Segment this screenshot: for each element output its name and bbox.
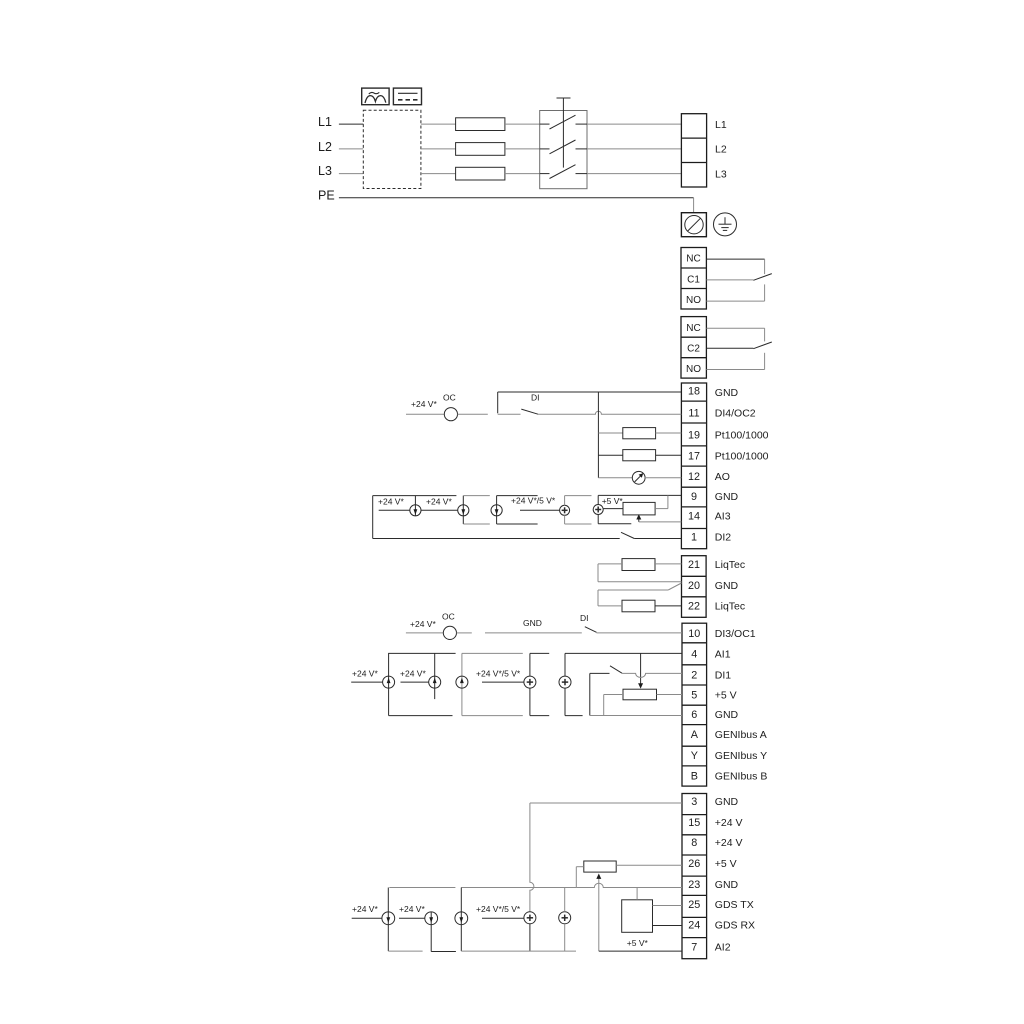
svg-text:DI: DI bbox=[531, 393, 540, 403]
svg-text:L2: L2 bbox=[318, 140, 332, 154]
svg-text:+24 V*/5 V*: +24 V*/5 V* bbox=[476, 904, 521, 914]
svg-text:10: 10 bbox=[688, 628, 700, 640]
svg-text:NC: NC bbox=[686, 254, 700, 265]
svg-text:GENIbus B: GENIbus B bbox=[715, 771, 768, 783]
svg-text:L3: L3 bbox=[715, 168, 727, 180]
svg-text:Pt100/1000: Pt100/1000 bbox=[715, 430, 769, 442]
svg-text:Y: Y bbox=[691, 750, 698, 762]
svg-text:+24 V*: +24 V* bbox=[400, 668, 426, 678]
svg-text:+24 V*: +24 V* bbox=[352, 668, 378, 678]
svg-text:OC: OC bbox=[443, 393, 456, 403]
svg-text:DI4/OC2: DI4/OC2 bbox=[715, 408, 756, 420]
svg-text:11: 11 bbox=[688, 408, 699, 420]
svg-text:+5 V: +5 V bbox=[715, 689, 737, 701]
svg-text:GND: GND bbox=[715, 580, 739, 592]
svg-text:Pt100/1000: Pt100/1000 bbox=[715, 451, 769, 463]
svg-text:18: 18 bbox=[688, 386, 700, 398]
svg-text:3: 3 bbox=[691, 796, 697, 808]
svg-text:C1: C1 bbox=[687, 274, 700, 285]
svg-text:NO: NO bbox=[686, 364, 701, 375]
svg-text:GND: GND bbox=[523, 618, 542, 628]
svg-text:15: 15 bbox=[688, 817, 700, 829]
svg-text:GDS TX: GDS TX bbox=[715, 899, 754, 911]
svg-text:17: 17 bbox=[688, 451, 700, 463]
svg-text:GND: GND bbox=[715, 879, 739, 891]
svg-text:+5 V: +5 V bbox=[715, 858, 737, 870]
svg-text:AI2: AI2 bbox=[715, 941, 731, 953]
svg-text:A: A bbox=[691, 729, 699, 741]
svg-text:22: 22 bbox=[688, 600, 700, 612]
svg-text:+24 V*/5 V*: +24 V*/5 V* bbox=[476, 668, 521, 678]
svg-text:12: 12 bbox=[688, 471, 700, 483]
svg-text:+24 V*: +24 V* bbox=[378, 497, 404, 507]
svg-text:5: 5 bbox=[691, 689, 697, 701]
svg-text:DI: DI bbox=[580, 613, 589, 623]
svg-text:+24 V: +24 V bbox=[715, 817, 743, 829]
svg-text:GND: GND bbox=[715, 387, 739, 399]
svg-text:9: 9 bbox=[691, 491, 697, 503]
svg-text:+24 V*: +24 V* bbox=[399, 904, 425, 914]
svg-text:6: 6 bbox=[691, 709, 697, 721]
svg-text:DI2: DI2 bbox=[715, 531, 732, 543]
svg-text:23: 23 bbox=[688, 879, 700, 891]
svg-text:AI1: AI1 bbox=[715, 648, 731, 660]
svg-text:LiqTec: LiqTec bbox=[715, 559, 745, 571]
svg-text:24: 24 bbox=[688, 919, 700, 931]
svg-text:+24 V*: +24 V* bbox=[410, 619, 436, 629]
svg-text:B: B bbox=[691, 771, 698, 783]
svg-text:OC: OC bbox=[442, 612, 455, 622]
svg-text:L3: L3 bbox=[318, 164, 332, 178]
svg-text:+24 V: +24 V bbox=[715, 837, 743, 849]
svg-text:GND: GND bbox=[715, 796, 739, 808]
svg-text:GENIbus Y: GENIbus Y bbox=[715, 750, 767, 762]
svg-text:+24 V*: +24 V* bbox=[411, 399, 437, 409]
svg-text:+24 V*: +24 V* bbox=[426, 497, 452, 507]
svg-text:8: 8 bbox=[691, 837, 697, 849]
svg-text:26: 26 bbox=[688, 858, 700, 870]
svg-text:+24 V*: +24 V* bbox=[352, 904, 378, 914]
svg-text:LiqTec: LiqTec bbox=[715, 600, 745, 612]
svg-text:+24 V*/5 V*: +24 V*/5 V* bbox=[511, 496, 556, 506]
svg-text:2: 2 bbox=[691, 669, 697, 681]
svg-text:14: 14 bbox=[688, 510, 700, 522]
svg-text:DI1: DI1 bbox=[715, 669, 732, 681]
svg-text:AO: AO bbox=[715, 471, 730, 483]
svg-text:GND: GND bbox=[715, 709, 739, 721]
svg-text:19: 19 bbox=[688, 430, 700, 442]
svg-text:GDS RX: GDS RX bbox=[715, 919, 755, 931]
svg-text:DI3/OC1: DI3/OC1 bbox=[715, 628, 756, 640]
svg-text:+5 V*: +5 V* bbox=[627, 938, 649, 948]
svg-text:AI3: AI3 bbox=[715, 510, 731, 522]
svg-text:+5 V*: +5 V* bbox=[602, 496, 624, 506]
svg-text:C2: C2 bbox=[687, 344, 700, 355]
svg-text:L1: L1 bbox=[715, 119, 727, 131]
svg-text:GENIbus A: GENIbus A bbox=[715, 729, 767, 741]
svg-text:20: 20 bbox=[688, 580, 700, 592]
svg-text:1: 1 bbox=[691, 531, 697, 543]
svg-text:L2: L2 bbox=[715, 144, 727, 156]
svg-text:4: 4 bbox=[691, 648, 697, 660]
svg-text:7: 7 bbox=[691, 941, 697, 953]
svg-text:PE: PE bbox=[318, 188, 335, 202]
svg-text:25: 25 bbox=[688, 899, 700, 911]
svg-text:GND: GND bbox=[715, 491, 739, 503]
svg-text:21: 21 bbox=[688, 559, 700, 571]
svg-text:NO: NO bbox=[686, 295, 701, 306]
svg-text:NC: NC bbox=[686, 323, 700, 334]
svg-text:L1: L1 bbox=[318, 115, 332, 129]
